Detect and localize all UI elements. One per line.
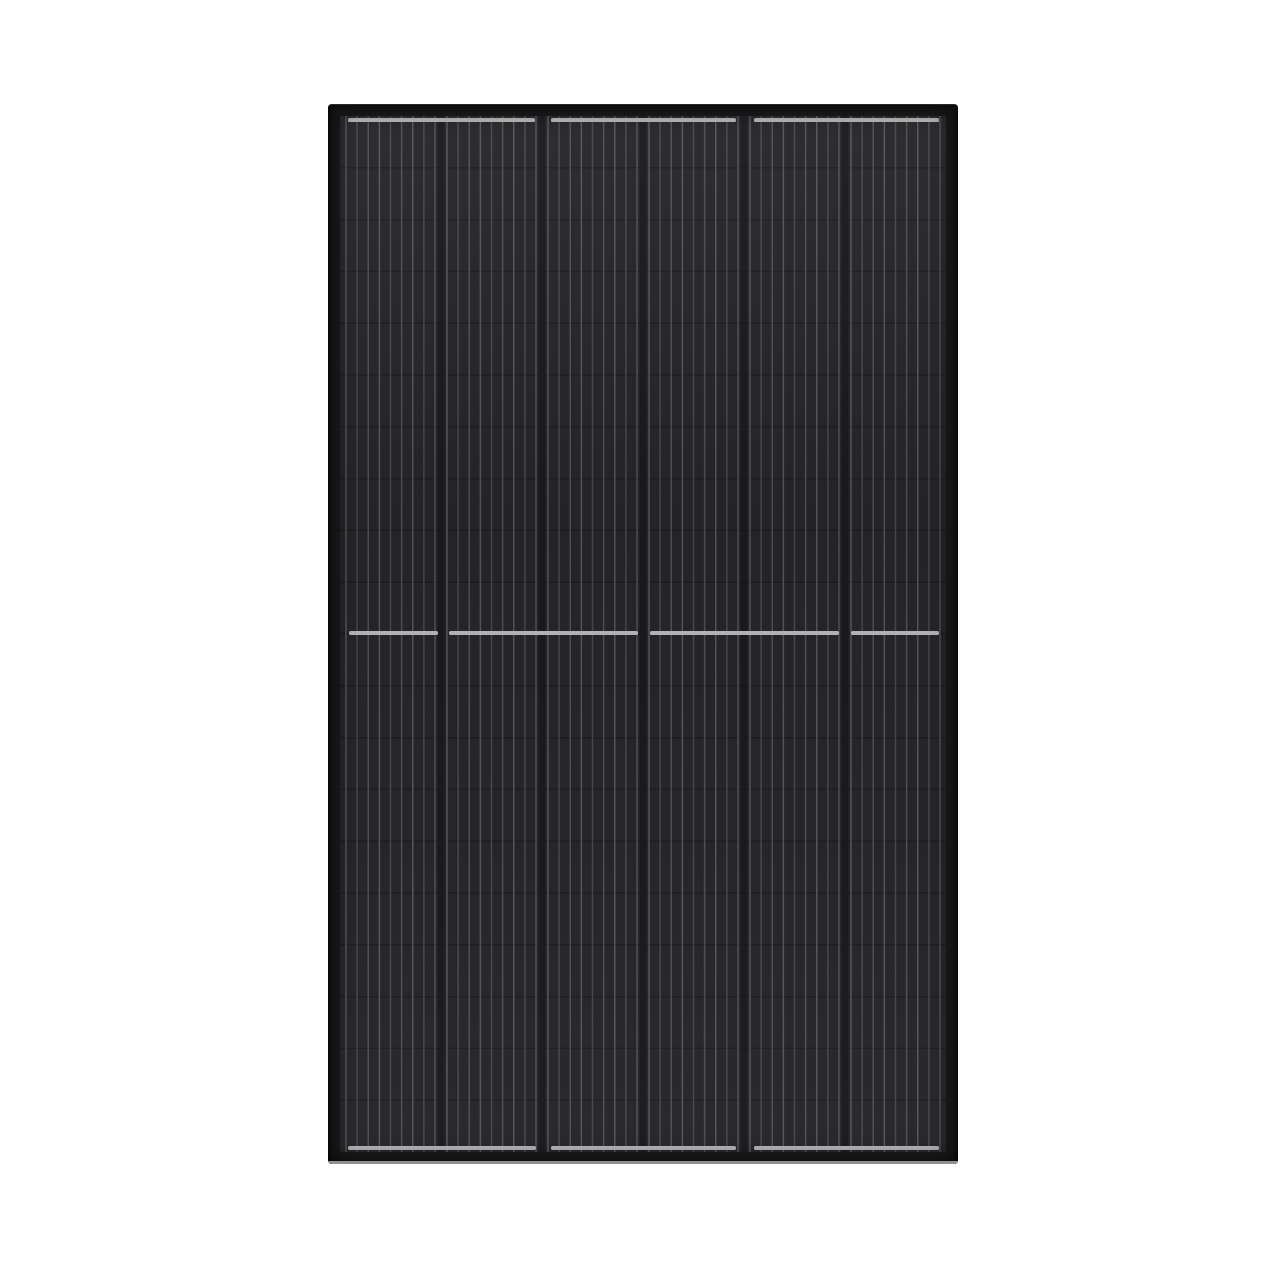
cell-column-gap bbox=[842, 116, 849, 1152]
cell-column-gap bbox=[438, 116, 445, 1152]
panel-svg bbox=[328, 104, 958, 1164]
busbar-line bbox=[648, 116, 650, 1152]
bus-ribbon-top bbox=[551, 118, 736, 122]
bus-ribbon-top bbox=[348, 118, 535, 122]
bus-ribbon-middle bbox=[349, 631, 438, 635]
bus-ribbon-bottom bbox=[754, 1146, 939, 1150]
bus-ribbon-middle bbox=[650, 631, 839, 635]
bus-ribbon-middle bbox=[449, 631, 638, 635]
bus-ribbon-top bbox=[754, 118, 939, 122]
cell-column-gap bbox=[640, 116, 647, 1152]
solar-panel-image bbox=[328, 104, 958, 1164]
product-photo-canvas bbox=[0, 0, 1280, 1280]
busbar-line bbox=[446, 116, 448, 1152]
bus-ribbon-middle bbox=[851, 631, 939, 635]
busbar-line bbox=[345, 116, 347, 1152]
busbar-line bbox=[939, 116, 941, 1152]
bus-ribbon-bottom bbox=[551, 1146, 736, 1150]
bus-ribbon-bottom bbox=[348, 1146, 536, 1150]
